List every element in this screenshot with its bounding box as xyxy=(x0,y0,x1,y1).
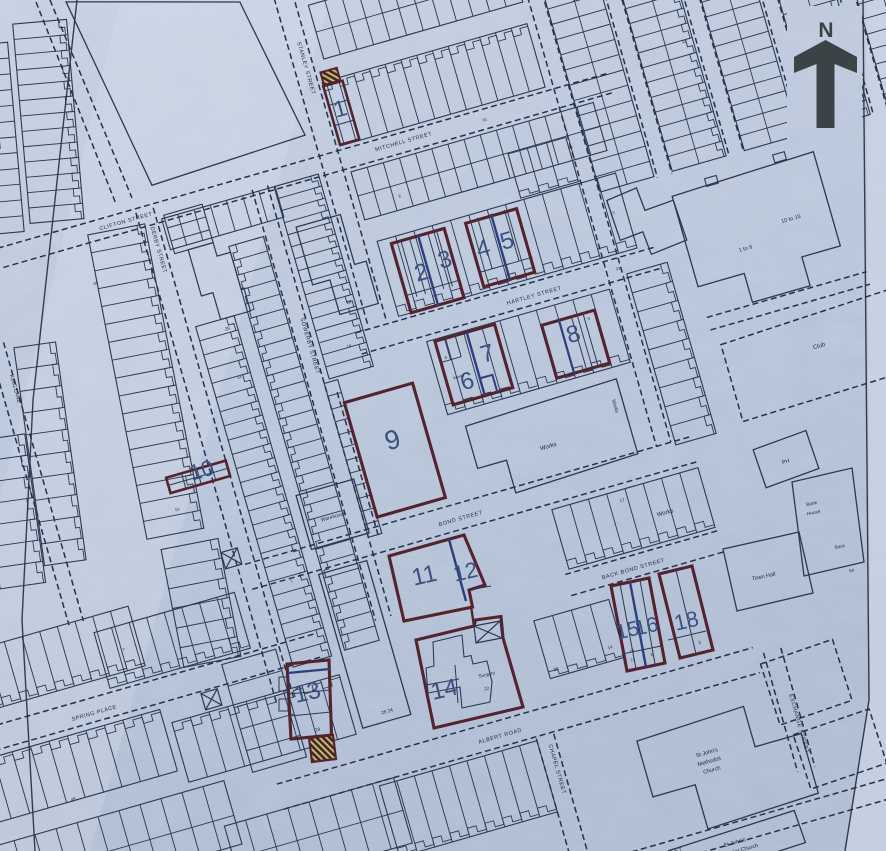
svg-text:N: N xyxy=(818,19,833,42)
